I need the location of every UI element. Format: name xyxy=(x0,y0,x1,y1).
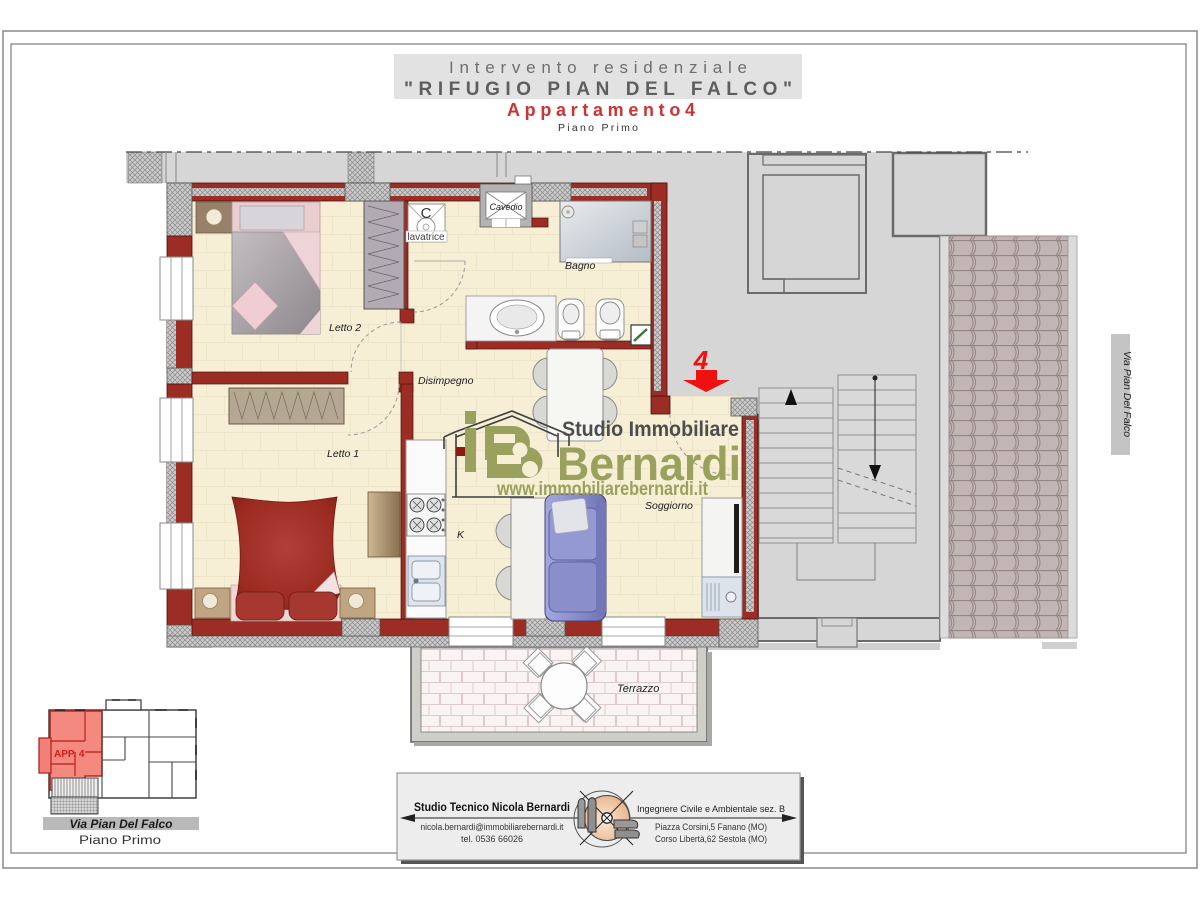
svg-text:Ingegnere Civile e Ambientale: Ingegnere Civile e Ambientale sez. B xyxy=(637,804,785,815)
svg-text:Disimpegno: Disimpegno xyxy=(418,375,474,387)
svg-text:Corso Libertà,62 Sestola (MO): Corso Libertà,62 Sestola (MO) xyxy=(655,834,767,844)
svg-text:Terrazzo: Terrazzo xyxy=(617,683,659,695)
svg-text:Studio Tecnico Nicola Bernardi: Studio Tecnico Nicola Bernardi xyxy=(414,802,570,814)
svg-text:nicola.bernardi@immobiliareber: nicola.bernardi@immobiliarebernardi.it xyxy=(421,822,564,832)
svg-text:Letto 2: Letto 2 xyxy=(329,322,361,334)
svg-text:Via Pian Del Falco: Via Pian Del Falco xyxy=(1121,351,1133,437)
svg-text:tel. 0536 66026: tel. 0536 66026 xyxy=(461,834,523,844)
svg-text:Piano Primo: Piano Primo xyxy=(79,835,161,847)
svg-text:APP. 4: APP. 4 xyxy=(54,749,85,760)
svg-text:Letto 1: Letto 1 xyxy=(327,448,359,460)
svg-text:Cavedio: Cavedio xyxy=(489,202,522,212)
svg-text:Bagno: Bagno xyxy=(565,260,596,272)
svg-text:lavatrice: lavatrice xyxy=(407,232,445,243)
svg-text:Appartamento4: Appartamento4 xyxy=(507,100,695,120)
svg-text:Piano Primo: Piano Primo xyxy=(558,122,638,134)
svg-text:Intervento residenziale: Intervento residenziale xyxy=(449,58,747,77)
svg-text:Via Pian Del Falco: Via Pian Del Falco xyxy=(70,817,173,831)
svg-text:C: C xyxy=(421,205,432,222)
svg-text:Piazza Corsini,5 Fanano (MO): Piazza Corsini,5 Fanano (MO) xyxy=(655,822,767,832)
svg-text:www.immobiliarebernardi.it: www.immobiliarebernardi.it xyxy=(496,479,708,500)
svg-text:K: K xyxy=(457,529,465,541)
svg-text:Soggiorno: Soggiorno xyxy=(645,500,693,512)
